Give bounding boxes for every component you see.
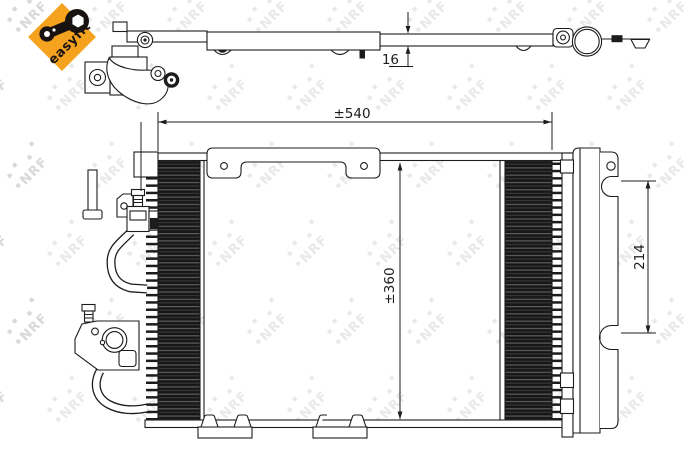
top-mounting-bracket bbox=[207, 148, 380, 178]
dimension-depth-label: 16 bbox=[382, 52, 399, 68]
left-comb-fins bbox=[146, 163, 159, 421]
lower-connection-fitting bbox=[75, 305, 139, 371]
top-view bbox=[85, 22, 650, 104]
left-fin-band bbox=[158, 160, 200, 427]
dimension-width-label: ±540 bbox=[333, 106, 370, 122]
corner-plate bbox=[134, 152, 158, 177]
right-tank bbox=[562, 153, 573, 437]
top-view-fittings bbox=[85, 32, 179, 103]
front-view bbox=[75, 148, 573, 438]
outlet-pipe bbox=[96, 371, 147, 410]
dimension-height bbox=[398, 163, 403, 420]
technical-drawing: 16 ±540 ±360 214 bbox=[0, 0, 700, 460]
condenser-catalog-image: NRFNRFNRFNRFNRFNRFNRFNRFNRFNRFNRFNRFNRFN… bbox=[0, 0, 700, 460]
dimension-height-label: ±360 bbox=[382, 267, 398, 304]
side-bracket-profile bbox=[600, 152, 619, 429]
upper-connection-fitting bbox=[117, 190, 158, 232]
inlet-pipe bbox=[111, 232, 147, 289]
dimension-bracket-spacing-label: 214 bbox=[632, 244, 648, 270]
right-fin-band bbox=[505, 160, 552, 427]
upper-left-hanger bbox=[83, 170, 102, 219]
